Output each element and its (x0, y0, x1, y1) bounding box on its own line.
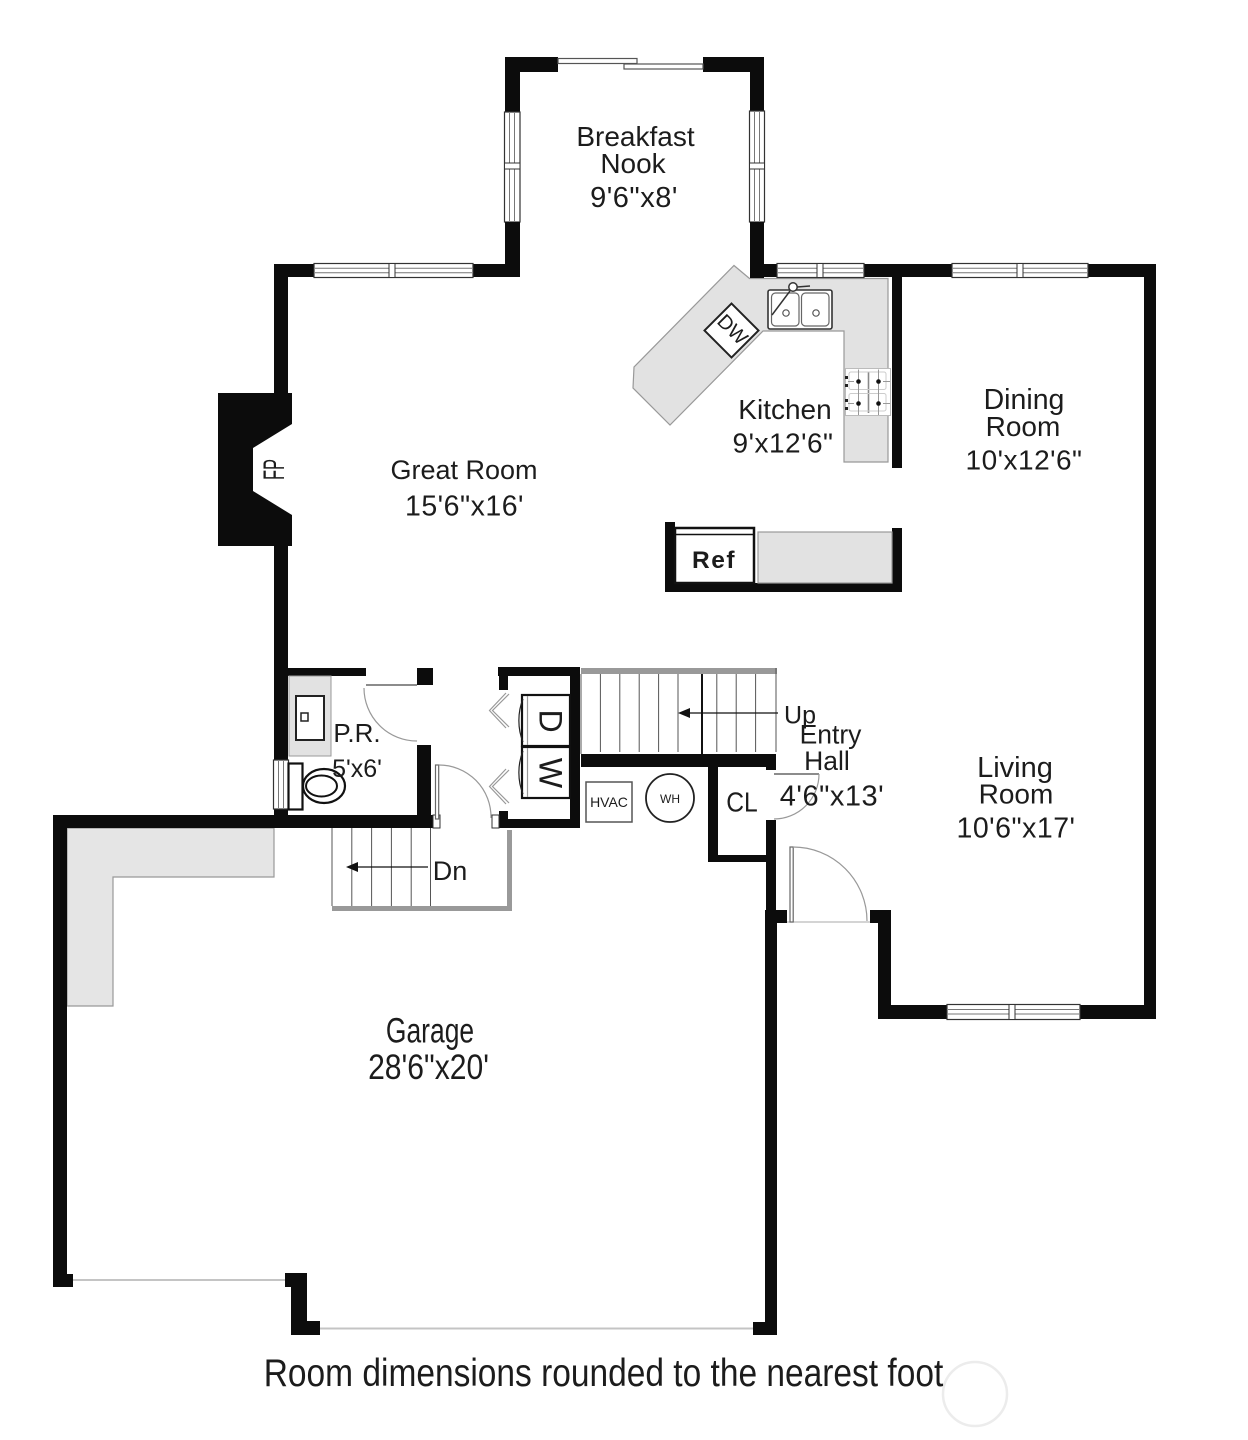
svg-text:Garage: Garage (386, 1011, 474, 1051)
svg-text:Room dimensions rounded to the: Room dimensions rounded to the nearest f… (264, 1351, 944, 1395)
svg-text:P.R.: P.R. (333, 718, 380, 748)
svg-text:15'6"x16': 15'6"x16' (405, 491, 524, 523)
svg-text:Dn: Dn (433, 856, 468, 886)
svg-text:Room: Room (979, 779, 1054, 810)
svg-text:Room: Room (986, 411, 1061, 442)
svg-text:Kitchen: Kitchen (738, 394, 831, 425)
svg-text:10'6"x17': 10'6"x17' (956, 813, 1075, 845)
svg-text:Up: Up (784, 702, 816, 730)
svg-text:Nook: Nook (600, 148, 666, 179)
svg-text:10'x12'6": 10'x12'6" (966, 445, 1083, 476)
svg-text:D: D (533, 709, 569, 732)
svg-text:Great Room: Great Room (390, 455, 537, 485)
svg-text:FP: FP (258, 459, 291, 480)
svg-text:W: W (533, 758, 569, 789)
svg-text:Ref: Ref (692, 547, 736, 574)
svg-text:4'6"x13': 4'6"x13' (780, 781, 884, 813)
svg-text:9'x12'6": 9'x12'6" (733, 428, 834, 459)
svg-text:CL: CL (726, 786, 757, 818)
svg-text:WH: WH (660, 792, 680, 806)
svg-text:HVAC: HVAC (590, 794, 628, 810)
svg-text:Hall: Hall (804, 746, 850, 776)
svg-text:28'6"x20': 28'6"x20' (368, 1047, 489, 1087)
svg-text:9'6"x8': 9'6"x8' (590, 182, 678, 214)
svg-text:5'x6': 5'x6' (332, 755, 382, 783)
